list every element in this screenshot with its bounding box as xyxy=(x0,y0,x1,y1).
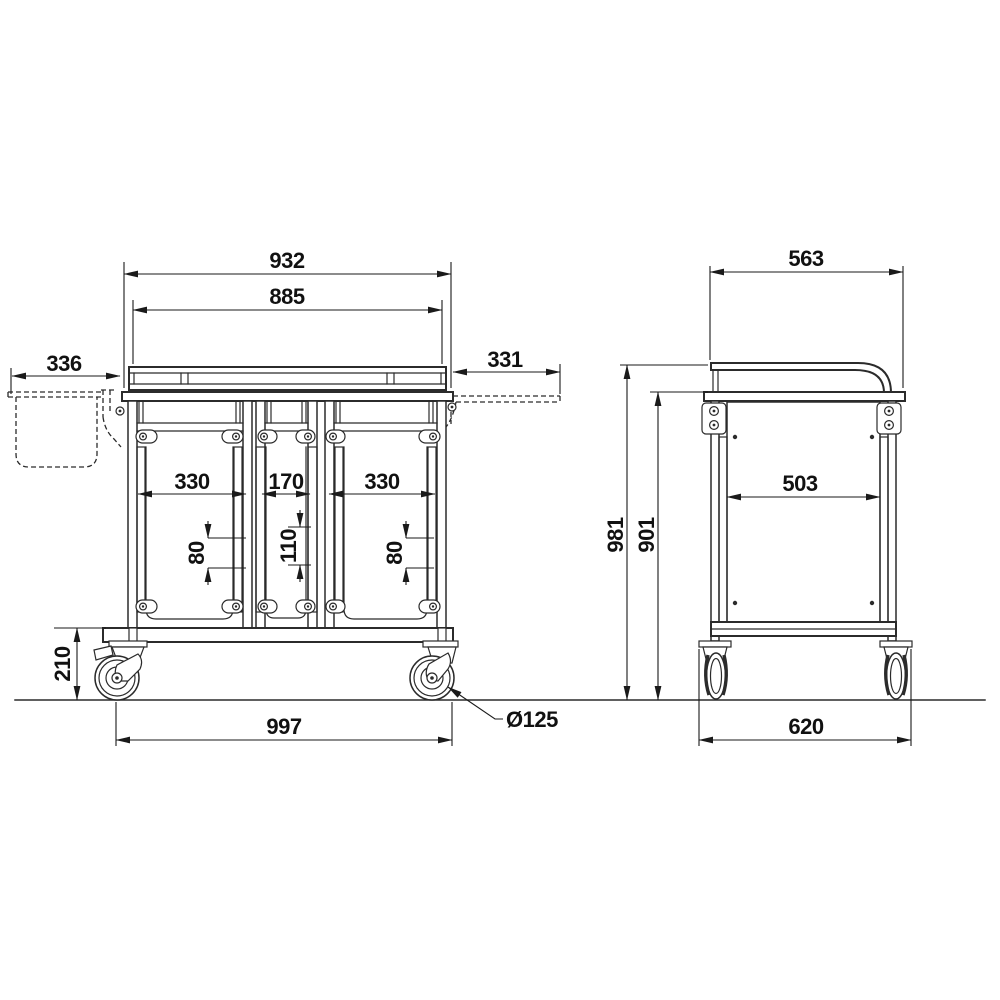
side-panel xyxy=(727,402,880,624)
hanging-basket-dashed xyxy=(8,390,124,467)
dim-slot-pitch-right-label: 80 xyxy=(382,541,407,565)
dim-bay-right-label: 330 xyxy=(364,469,399,494)
bay-top-tabs xyxy=(136,430,440,443)
dim-wheelbase-label: 997 xyxy=(266,714,301,739)
dim-basket-extension: 336 xyxy=(11,351,120,394)
upright-post xyxy=(243,401,252,628)
bay-top-bars xyxy=(137,401,437,431)
dim-bay-left-label: 330 xyxy=(174,469,209,494)
dim-top-depth: 563 xyxy=(710,246,903,388)
dim-slot-pitch-middle-label: 110 xyxy=(276,529,301,563)
side-post-left xyxy=(711,401,719,641)
dim-bay-right-width: 330 xyxy=(329,469,435,494)
dim-caster-diameter-label: Ø125 xyxy=(506,707,558,732)
dim-bottom-depth-label: 620 xyxy=(788,714,823,739)
dim-slot-pitch-left-label: 80 xyxy=(184,541,209,565)
caster-stem xyxy=(438,628,446,642)
tabletop xyxy=(122,392,453,401)
dim-bay-middle-width: 170 xyxy=(262,469,310,494)
keyhole-plate-left xyxy=(702,403,726,434)
dim-worktop-height: 901 xyxy=(634,392,708,700)
caster-stem xyxy=(129,628,137,642)
dim-bottom-depth: 620 xyxy=(699,649,911,746)
caster-plate-side xyxy=(880,641,912,647)
dim-caster-diameter: Ø125 xyxy=(448,687,558,732)
caster-plate-side xyxy=(699,641,731,647)
technical-drawing: 932 885 336 331 330 170 xyxy=(0,0,1000,1000)
gallery-rail xyxy=(129,367,446,390)
caster-side-right xyxy=(884,647,908,699)
push-handle xyxy=(711,363,891,393)
dim-bay-left-width: 330 xyxy=(138,469,246,494)
keyhole-plate-right xyxy=(877,403,901,434)
bay-bottom-tabs xyxy=(136,600,440,613)
dim-slot-pitch-left: 80 xyxy=(184,521,246,585)
dim-inner-depth-label: 503 xyxy=(782,471,817,496)
dim-overall-width-label: 932 xyxy=(269,248,304,273)
drawing-page: 932 885 336 331 330 170 xyxy=(0,0,1000,1000)
side-post-right xyxy=(888,401,896,641)
dim-worktop-height-label: 901 xyxy=(634,517,659,552)
caster-side-left xyxy=(703,647,727,699)
dim-clearance-height-label: 210 xyxy=(50,646,75,681)
dim-gallery-width: 885 xyxy=(133,284,442,364)
storage-bays xyxy=(128,401,446,628)
dim-overall-height-label: 981 xyxy=(603,517,628,552)
dim-shelf-extension: 331 xyxy=(453,347,560,394)
bottom-shelf xyxy=(103,628,453,642)
caster-front-right xyxy=(410,641,458,700)
dim-basket-extension-label: 336 xyxy=(46,351,81,376)
dim-slot-pitch-right: 80 xyxy=(382,521,434,585)
caster-front-left xyxy=(94,641,147,700)
dim-gallery-width-label: 885 xyxy=(269,284,304,309)
dim-wheelbase: 997 xyxy=(116,702,452,746)
side-view xyxy=(699,363,912,699)
dim-bay-middle-label: 170 xyxy=(268,469,303,494)
dim-top-depth-label: 563 xyxy=(788,246,823,271)
side-shelf-dashed xyxy=(446,396,560,427)
slotted-rail-side xyxy=(719,437,727,624)
dim-shelf-extension-label: 331 xyxy=(487,347,522,372)
slotted-rail-side xyxy=(880,437,888,624)
tabletop-side xyxy=(704,392,905,401)
